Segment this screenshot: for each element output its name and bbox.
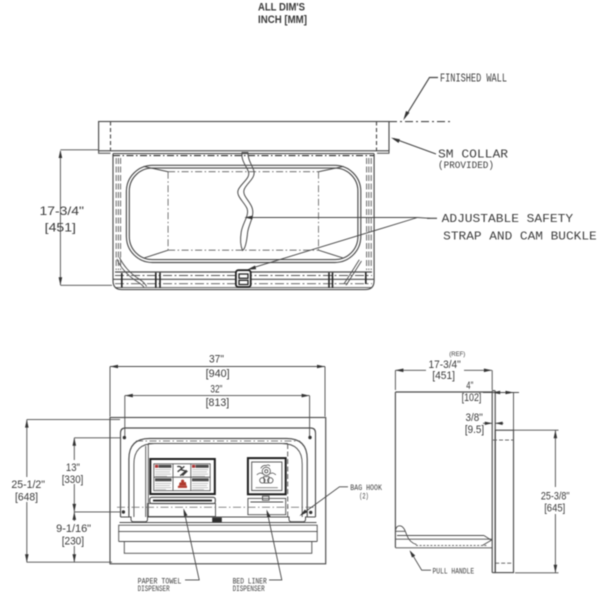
svg-text:(2): (2) bbox=[359, 492, 369, 502]
svg-text:[645]: [645] bbox=[544, 503, 565, 515]
svg-text:[230]: [230] bbox=[62, 536, 84, 548]
svg-text:[102]: [102] bbox=[462, 392, 482, 404]
svg-text:37": 37" bbox=[209, 354, 224, 366]
svg-text:[9.5]: [9.5] bbox=[465, 424, 484, 436]
svg-text:SM COLLAR: SM COLLAR bbox=[438, 148, 508, 162]
svg-text:3/8": 3/8" bbox=[466, 412, 483, 424]
svg-text:[330]: [330] bbox=[62, 474, 84, 486]
svg-text:ADJUSTABLE SAFETY: ADJUSTABLE SAFETY bbox=[442, 212, 573, 226]
svg-text:25-1/2": 25-1/2" bbox=[11, 479, 45, 491]
svg-text:ALL DIM'S: ALL DIM'S bbox=[258, 2, 305, 14]
svg-text:STRAP AND CAM BUCKLE: STRAP AND CAM BUCKLE bbox=[443, 230, 597, 244]
svg-text:9-1/16": 9-1/16" bbox=[56, 523, 91, 535]
svg-text:PULL HANDLE: PULL HANDLE bbox=[433, 567, 475, 577]
svg-text:4": 4" bbox=[466, 380, 473, 392]
svg-text:(REF): (REF) bbox=[449, 351, 465, 358]
svg-text:32": 32" bbox=[210, 384, 222, 396]
svg-text:INCH [MM]: INCH [MM] bbox=[258, 14, 307, 26]
svg-text:(PROVIDED): (PROVIDED) bbox=[438, 160, 494, 172]
svg-text:13": 13" bbox=[66, 462, 80, 474]
svg-text:17-3/4": 17-3/4" bbox=[40, 204, 85, 218]
svg-text:FINISHED WALL: FINISHED WALL bbox=[440, 72, 507, 86]
svg-text:DISPENSER: DISPENSER bbox=[233, 584, 265, 594]
svg-text:[451]: [451] bbox=[432, 370, 455, 382]
svg-text:[451]: [451] bbox=[45, 221, 76, 235]
svg-text:[648]: [648] bbox=[15, 492, 38, 504]
svg-text:[813]: [813] bbox=[206, 397, 230, 409]
svg-text:[940]: [940] bbox=[206, 368, 230, 380]
svg-text:DISPENSER: DISPENSER bbox=[138, 584, 170, 594]
svg-text:25-3/8": 25-3/8" bbox=[541, 491, 570, 503]
